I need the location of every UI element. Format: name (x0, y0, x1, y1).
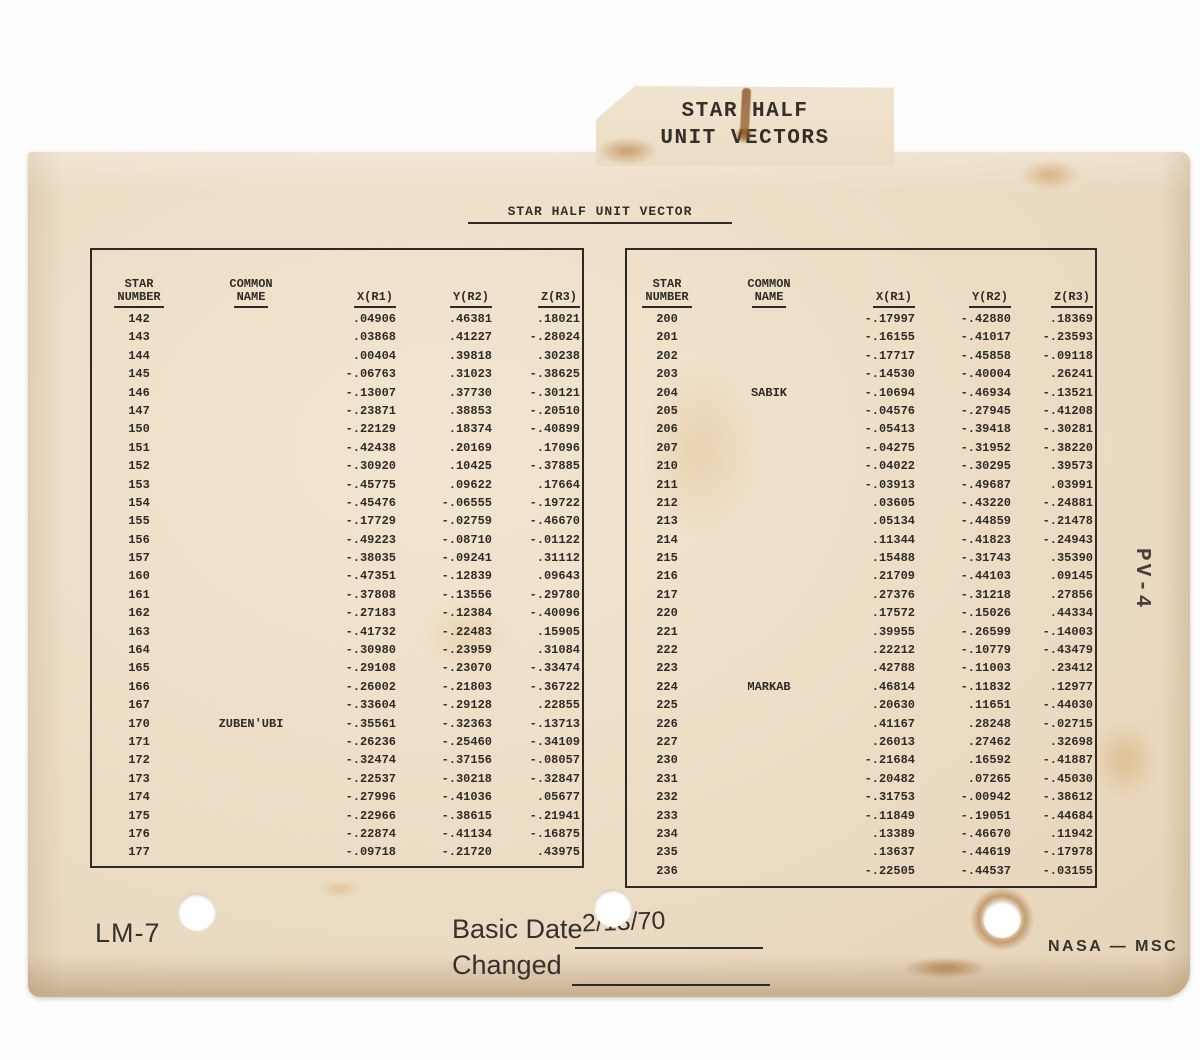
cell-y-r2: -.44103 (917, 567, 1013, 585)
changed-underline (572, 984, 770, 986)
cell-y-r2: -.31743 (917, 549, 1013, 567)
cell-x-r1: .26013 (831, 733, 917, 751)
punch-hole-right (983, 900, 1021, 938)
cell-star-number: 217 (627, 586, 707, 604)
cell-star-number: 144 (92, 347, 186, 365)
cell-x-r1: -.23871 (316, 402, 398, 420)
table-row: 217.27376-.31218.27856 (627, 586, 1095, 604)
cell-x-r1: -.31753 (831, 788, 917, 806)
cell-y-r2: -.26599 (917, 623, 1013, 641)
cell-x-r1: -.11849 (831, 807, 917, 825)
cell-x-r1: -.38035 (316, 549, 398, 567)
table-row: 221.39955-.26599-.14003 (627, 623, 1095, 641)
cell-x-r1: -.22505 (831, 862, 917, 880)
star-table-left: STAR NUMBER COMMON NAME X(R1) Y(R2) Z(R3… (90, 248, 584, 868)
cell-z-r3: .09145 (1013, 567, 1095, 585)
cell-y-r2: -.44537 (917, 862, 1013, 880)
table-row: 233-.11849-.19051-.44684 (627, 807, 1095, 825)
header-star-number: STAR NUMBER (627, 278, 707, 308)
table-row: 165-.29108-.23070-.33474 (92, 659, 582, 677)
cell-star-number: 165 (92, 659, 186, 677)
cell-z-r3: -.03155 (1013, 862, 1095, 880)
table-row: 201-.16155-.41017-.23593 (627, 328, 1095, 346)
cell-star-number: 235 (627, 843, 707, 861)
cell-z-r3: -.29780 (494, 586, 582, 604)
cell-y-r2: -.32363 (398, 715, 494, 733)
cell-y-r2: .09622 (398, 476, 494, 494)
header-text: NUMBER (114, 291, 163, 308)
header-text: COMMON (747, 277, 790, 291)
cell-z-r3: -.09118 (1013, 347, 1095, 365)
cell-star-number: 160 (92, 567, 186, 585)
table-rows: 200-.17997-.42880.18369201-.16155-.41017… (627, 310, 1095, 880)
cell-star-number: 216 (627, 567, 707, 585)
tab-label: STAR HALF UNIT VECTORS (596, 98, 894, 152)
table-row: 154-.45476-.06555-.19722 (92, 494, 582, 512)
cell-z-r3: -.16875 (494, 825, 582, 843)
star-table-right: STAR NUMBER COMMON NAME X(R1) Y(R2) Z(R3… (625, 248, 1097, 888)
cell-y-r2: -.11003 (917, 659, 1013, 677)
cell-y-r2: -.27945 (917, 402, 1013, 420)
cell-z-r3: .15905 (494, 623, 582, 641)
cell-z-r3: -.40899 (494, 420, 582, 438)
cell-x-r1: -.45476 (316, 494, 398, 512)
cell-z-r3: -.19722 (494, 494, 582, 512)
cell-z-r3: -.37885 (494, 457, 582, 475)
table-row: 231-.20482.07265-.45030 (627, 770, 1095, 788)
table-row: 203-.14530-.40004.26241 (627, 365, 1095, 383)
cell-x-r1: .27376 (831, 586, 917, 604)
program-label: LM-7 (95, 918, 161, 949)
cell-star-number: 153 (92, 476, 186, 494)
table-row: 202-.17717-.45858-.09118 (627, 347, 1095, 365)
tab-label-line2: UNIT VECTORS (596, 125, 894, 152)
cell-x-r1: .39955 (831, 623, 917, 641)
cell-z-r3: .26241 (1013, 365, 1095, 383)
table-row: 235.13637-.44619-.17978 (627, 843, 1095, 861)
cell-star-number: 214 (627, 531, 707, 549)
header-x-r1: X(R1) (831, 291, 917, 308)
cell-x-r1: .13389 (831, 825, 917, 843)
header-z-r3: Z(R3) (1013, 291, 1095, 308)
cell-z-r3: -.36722 (494, 678, 582, 696)
cell-z-r3: .05677 (494, 788, 582, 806)
cell-x-r1: -.22966 (316, 807, 398, 825)
cell-x-r1: .11344 (831, 531, 917, 549)
card-top-tab: STAR HALF UNIT VECTORS (596, 86, 894, 166)
cell-x-r1: -.06763 (316, 365, 398, 383)
cell-star-number: 200 (627, 310, 707, 328)
cell-z-r3: -.44684 (1013, 807, 1095, 825)
cell-x-r1: -.22129 (316, 420, 398, 438)
table-row: 145-.06763.31023-.38625 (92, 365, 582, 383)
table-row: 223.42788-.11003.23412 (627, 659, 1095, 677)
cell-z-r3: -.21478 (1013, 512, 1095, 530)
cell-y-r2: -.39418 (917, 420, 1013, 438)
table-row: 171-.26236-.25460-.34109 (92, 733, 582, 751)
cell-y-r2: -.23959 (398, 641, 494, 659)
cell-x-r1: .22212 (831, 641, 917, 659)
cell-x-r1: .20630 (831, 696, 917, 714)
cell-x-r1: -.32474 (316, 751, 398, 769)
cell-star-number: 157 (92, 549, 186, 567)
cell-star-number: 211 (627, 476, 707, 494)
table-row: 151-.42438.20169.17096 (92, 439, 582, 457)
table-row: 166-.26002-.21803-.36722 (92, 678, 582, 696)
cell-star-number: 206 (627, 420, 707, 438)
cell-star-number: 175 (92, 807, 186, 825)
table-row: 153-.45775.09622.17664 (92, 476, 582, 494)
cell-star-number: 176 (92, 825, 186, 843)
table-row: 236-.22505-.44537-.03155 (627, 862, 1095, 880)
table-row: 224MARKAB.46814-.11832.12977 (627, 678, 1095, 696)
cell-x-r1: -.27183 (316, 604, 398, 622)
cell-y-r2: -.46934 (917, 384, 1013, 402)
cell-x-r1: -.17717 (831, 347, 917, 365)
punch-hole-left (178, 893, 216, 931)
cell-z-r3: .31084 (494, 641, 582, 659)
cell-star-number: 145 (92, 365, 186, 383)
cell-z-r3: .11942 (1013, 825, 1095, 843)
table-rows: 142.04906.46381.18021143.03868.41227-.28… (92, 310, 582, 862)
cell-star-number: 152 (92, 457, 186, 475)
cell-z-r3: -.14003 (1013, 623, 1095, 641)
header-y-r2: Y(R2) (917, 291, 1013, 308)
table-row: 174-.27996-.41036.05677 (92, 788, 582, 806)
cell-star-number: 210 (627, 457, 707, 475)
cell-y-r2: -.45858 (917, 347, 1013, 365)
cell-z-r3: -.33474 (494, 659, 582, 677)
cell-z-r3: -.44030 (1013, 696, 1095, 714)
table-row: 160-.47351-.12839.09643 (92, 567, 582, 585)
cell-y-r2: .11651 (917, 696, 1013, 714)
cell-y-r2: -.31218 (917, 586, 1013, 604)
cell-z-r3: -.41887 (1013, 751, 1095, 769)
cell-x-r1: -.45775 (316, 476, 398, 494)
table-row: 163-.41732-.22483.15905 (92, 623, 582, 641)
cell-y-r2: -.44859 (917, 512, 1013, 530)
table-row: 155-.17729-.02759-.46670 (92, 512, 582, 530)
cell-x-r1: .00404 (316, 347, 398, 365)
cell-star-number: 233 (627, 807, 707, 825)
cell-z-r3: -.08057 (494, 751, 582, 769)
table-row: 216.21709-.44103.09145 (627, 567, 1095, 585)
cell-y-r2: .31023 (398, 365, 494, 383)
cell-star-number: 155 (92, 512, 186, 530)
header-text: STAR (653, 277, 682, 291)
cell-star-number: 150 (92, 420, 186, 438)
cell-z-r3: -.38625 (494, 365, 582, 383)
cell-star-number: 212 (627, 494, 707, 512)
cell-z-r3: .35390 (1013, 549, 1095, 567)
cell-star-number: 174 (92, 788, 186, 806)
cell-star-number: 215 (627, 549, 707, 567)
cell-y-r2: .18374 (398, 420, 494, 438)
cell-star-number: 223 (627, 659, 707, 677)
cell-y-r2: .28248 (917, 715, 1013, 733)
cell-y-r2: .46381 (398, 310, 494, 328)
cell-y-r2: -.38615 (398, 807, 494, 825)
header-z-r3: Z(R3) (494, 291, 582, 308)
cell-z-r3: .27856 (1013, 586, 1095, 604)
table-row: 161-.37808-.13556-.29780 (92, 586, 582, 604)
cell-star-number: 151 (92, 439, 186, 457)
cell-z-r3: .18369 (1013, 310, 1095, 328)
header-text: Y(R2) (969, 291, 1011, 308)
table-row: 144.00404.39818.30238 (92, 347, 582, 365)
cell-star-number: 232 (627, 788, 707, 806)
cell-z-r3: -.23593 (1013, 328, 1095, 346)
table-row: 205-.04576-.27945-.41208 (627, 402, 1095, 420)
cell-y-r2: -.29128 (398, 696, 494, 714)
cell-x-r1: .03605 (831, 494, 917, 512)
cell-z-r3: .18021 (494, 310, 582, 328)
cell-z-r3: -.46670 (494, 512, 582, 530)
cell-x-r1: -.16155 (831, 328, 917, 346)
table-row: 210-.04022-.30295.39573 (627, 457, 1095, 475)
table-row: 176-.22874-.41134-.16875 (92, 825, 582, 843)
cell-star-number: 162 (92, 604, 186, 622)
cell-z-r3: -.30281 (1013, 420, 1095, 438)
table-row: 167-.33604-.29128.22855 (92, 696, 582, 714)
basic-date-label: Basic Date (452, 914, 583, 945)
cell-z-r3: -.32847 (494, 770, 582, 788)
cell-z-r3: .32698 (1013, 733, 1095, 751)
cell-star-number: 170 (92, 715, 186, 733)
table-row: 214.11344-.41823-.24943 (627, 531, 1095, 549)
cell-x-r1: .04906 (316, 310, 398, 328)
cell-star-number: 226 (627, 715, 707, 733)
cell-star-number: 146 (92, 384, 186, 402)
cell-star-number: 234 (627, 825, 707, 843)
cell-z-r3: -.01122 (494, 531, 582, 549)
cell-star-number: 173 (92, 770, 186, 788)
cell-z-r3: .17096 (494, 439, 582, 457)
cell-x-r1: -.27996 (316, 788, 398, 806)
cell-z-r3: -.20510 (494, 402, 582, 420)
cell-star-number: 224 (627, 678, 707, 696)
cell-x-r1: -.22537 (316, 770, 398, 788)
cell-z-r3: -.17978 (1013, 843, 1095, 861)
cell-z-r3: -.40096 (494, 604, 582, 622)
cell-z-r3: -.02715 (1013, 715, 1095, 733)
header-text: COMMON (229, 277, 272, 291)
cell-x-r1: -.49223 (316, 531, 398, 549)
cell-z-r3: -.41208 (1013, 402, 1095, 420)
cell-star-number: 154 (92, 494, 186, 512)
cell-y-r2: -.12839 (398, 567, 494, 585)
cell-y-r2: -.21803 (398, 678, 494, 696)
cell-star-number: 222 (627, 641, 707, 659)
cell-x-r1: -.41732 (316, 623, 398, 641)
cell-y-r2: -.41134 (398, 825, 494, 843)
cell-y-r2: .20169 (398, 439, 494, 457)
cell-x-r1: .42788 (831, 659, 917, 677)
cell-y-r2: .37730 (398, 384, 494, 402)
cell-y-r2: .27462 (917, 733, 1013, 751)
cell-y-r2: -.19051 (917, 807, 1013, 825)
cell-star-number: 167 (92, 696, 186, 714)
header-x-r1: X(R1) (316, 291, 398, 308)
cell-star-number: 220 (627, 604, 707, 622)
cell-x-r1: -.26002 (316, 678, 398, 696)
cell-z-r3: -.38220 (1013, 439, 1095, 457)
table-row: 200-.17997-.42880.18369 (627, 310, 1095, 328)
cell-z-r3: -.43479 (1013, 641, 1095, 659)
header-text: Z(R3) (538, 291, 580, 308)
cell-z-r3: .31112 (494, 549, 582, 567)
cell-x-r1: -.33604 (316, 696, 398, 714)
header-text: X(R1) (354, 291, 396, 308)
header-text: STAR (125, 277, 154, 291)
cell-z-r3: -.30121 (494, 384, 582, 402)
header-text: NUMBER (642, 291, 691, 308)
table-row: 226.41167.28248-.02715 (627, 715, 1095, 733)
header-text: Z(R3) (1051, 291, 1093, 308)
cell-star-number: 142 (92, 310, 186, 328)
cell-y-r2: -.46670 (917, 825, 1013, 843)
table-row: 147-.23871.38853-.20510 (92, 402, 582, 420)
cell-x-r1: -.30980 (316, 641, 398, 659)
cell-x-r1: -.22874 (316, 825, 398, 843)
cell-x-r1: .05134 (831, 512, 917, 530)
scanned-card-page: STAR HALF UNIT VECTORS STAR HALF UNIT VE… (0, 0, 1200, 1060)
table-header: STAR NUMBER COMMON NAME X(R1) Y(R2) Z(R3… (627, 250, 1095, 308)
cell-x-r1: .03868 (316, 328, 398, 346)
header-common-name: COMMON NAME (707, 278, 831, 308)
cell-star-number: 225 (627, 696, 707, 714)
cell-z-r3: .09643 (494, 567, 582, 585)
cell-x-r1: -.30920 (316, 457, 398, 475)
cell-y-r2: -.23070 (398, 659, 494, 677)
table-row: 222.22212-.10779-.43479 (627, 641, 1095, 659)
table-row: 150-.22129.18374-.40899 (92, 420, 582, 438)
cell-star-number: 204 (627, 384, 707, 402)
table-row: 207-.04275-.31952-.38220 (627, 439, 1095, 457)
cell-y-r2: -.49687 (917, 476, 1013, 494)
cell-star-number: 147 (92, 402, 186, 420)
cell-x-r1: -.35561 (316, 715, 398, 733)
header-text: X(R1) (873, 291, 915, 308)
cell-star-number: 230 (627, 751, 707, 769)
cell-star-number: 231 (627, 770, 707, 788)
cell-z-r3: .43975 (494, 843, 582, 861)
punch-hole-center (594, 889, 632, 927)
cell-x-r1: -.26236 (316, 733, 398, 751)
cell-x-r1: -.17729 (316, 512, 398, 530)
cell-z-r3: .30238 (494, 347, 582, 365)
cell-y-r2: -.30295 (917, 457, 1013, 475)
cell-y-r2: -.22483 (398, 623, 494, 641)
table-row: 143.03868.41227-.28024 (92, 328, 582, 346)
cell-y-r2: -.37156 (398, 751, 494, 769)
table-row: 212.03605-.43220-.24881 (627, 494, 1095, 512)
table-row: 173-.22537-.30218-.32847 (92, 770, 582, 788)
table-row: 211-.03913-.49687.03991 (627, 476, 1095, 494)
cell-y-r2: -.09241 (398, 549, 494, 567)
cell-z-r3: .12977 (1013, 678, 1095, 696)
cell-star-number: 227 (627, 733, 707, 751)
table-row: 227.26013.27462.32698 (627, 733, 1095, 751)
cell-star-number: 221 (627, 623, 707, 641)
cell-star-number: 171 (92, 733, 186, 751)
cell-y-r2: .16592 (917, 751, 1013, 769)
table-row: 206-.05413-.39418-.30281 (627, 420, 1095, 438)
cell-y-r2: -.40004 (917, 365, 1013, 383)
cell-x-r1: -.04022 (831, 457, 917, 475)
cell-y-r2: -.31952 (917, 439, 1013, 457)
cell-z-r3: .44334 (1013, 604, 1095, 622)
cell-y-r2: -.43220 (917, 494, 1013, 512)
cell-y-r2: .41227 (398, 328, 494, 346)
table-row: 225.20630.11651-.44030 (627, 696, 1095, 714)
cell-x-r1: -.04576 (831, 402, 917, 420)
table-row: 232-.31753-.00942-.38612 (627, 788, 1095, 806)
cell-y-r2: -.30218 (398, 770, 494, 788)
cell-y-r2: -.21720 (398, 843, 494, 861)
cell-common-name: ZUBEN'UBI (186, 715, 316, 733)
cell-x-r1: -.03913 (831, 476, 917, 494)
cell-x-r1: -.14530 (831, 365, 917, 383)
cell-y-r2: .39818 (398, 347, 494, 365)
cell-x-r1: .46814 (831, 678, 917, 696)
cell-y-r2: .10425 (398, 457, 494, 475)
cell-star-number: 177 (92, 843, 186, 861)
cell-z-r3: -.45030 (1013, 770, 1095, 788)
cell-z-r3: .22855 (494, 696, 582, 714)
cell-z-r3: .39573 (1013, 457, 1095, 475)
cell-y-r2: -.10779 (917, 641, 1013, 659)
cell-x-r1: -.29108 (316, 659, 398, 677)
table-row: 162-.27183-.12384-.40096 (92, 604, 582, 622)
table-row: 220.17572-.15026.44334 (627, 604, 1095, 622)
cell-y-r2: -.06555 (398, 494, 494, 512)
table-row: 230-.21684.16592-.41887 (627, 751, 1095, 769)
table-row: 175-.22966-.38615-.21941 (92, 807, 582, 825)
cell-x-r1: -.13007 (316, 384, 398, 402)
cell-y-r2: -.12384 (398, 604, 494, 622)
header-text: NAME (752, 291, 787, 308)
cell-star-number: 213 (627, 512, 707, 530)
page-title: STAR HALF UNIT VECTOR (468, 204, 732, 224)
cell-x-r1: .41167 (831, 715, 917, 733)
table-row: 177-.09718-.21720.43975 (92, 843, 582, 861)
cell-star-number: 172 (92, 751, 186, 769)
table-row: 146-.13007.37730-.30121 (92, 384, 582, 402)
table-row: 172-.32474-.37156-.08057 (92, 751, 582, 769)
cell-x-r1: -.05413 (831, 420, 917, 438)
header-text: NAME (234, 291, 269, 308)
table-row: 215.15488-.31743.35390 (627, 549, 1095, 567)
cell-z-r3: -.13713 (494, 715, 582, 733)
cell-x-r1: .13637 (831, 843, 917, 861)
cell-z-r3: .23412 (1013, 659, 1095, 677)
header-text: Y(R2) (450, 291, 492, 308)
cell-y-r2: -.15026 (917, 604, 1013, 622)
table-row: 204SABIK-.10694-.46934-.13521 (627, 384, 1095, 402)
cell-y-r2: -.41017 (917, 328, 1013, 346)
table-row: 157-.38035-.09241.31112 (92, 549, 582, 567)
cell-y-r2: .07265 (917, 770, 1013, 788)
basic-date-underline (575, 947, 763, 949)
cell-x-r1: .15488 (831, 549, 917, 567)
cell-star-number: 205 (627, 402, 707, 420)
cell-x-r1: -.47351 (316, 567, 398, 585)
cell-star-number: 207 (627, 439, 707, 457)
cell-star-number: 163 (92, 623, 186, 641)
cell-y-r2: -.11832 (917, 678, 1013, 696)
cell-z-r3: -.34109 (494, 733, 582, 751)
